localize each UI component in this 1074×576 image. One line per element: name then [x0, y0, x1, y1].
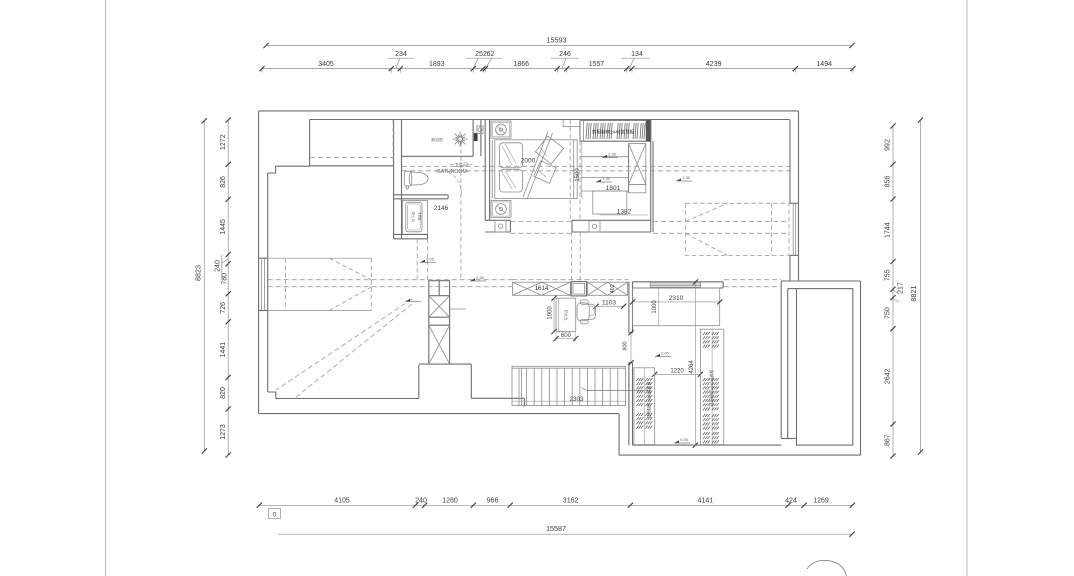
svg-text:3405: 3405 [318, 61, 334, 68]
svg-text:15593: 15593 [547, 36, 567, 45]
svg-text:3.05: 3.05 [426, 257, 433, 261]
svg-text:1273: 1273 [220, 424, 227, 440]
svg-text:1445: 1445 [220, 219, 227, 235]
svg-text:1.35: 1.35 [602, 177, 609, 181]
svg-text:0: 0 [273, 512, 277, 519]
svg-text:240: 240 [415, 498, 427, 505]
svg-text:1269: 1269 [813, 498, 829, 505]
svg-text:820: 820 [220, 387, 227, 399]
svg-text:867: 867 [885, 434, 892, 446]
svg-text:淋浴房: 淋浴房 [431, 136, 443, 142]
svg-text:2310: 2310 [669, 295, 684, 302]
svg-text:402: 402 [610, 284, 616, 293]
svg-text:780: 780 [222, 273, 229, 285]
svg-text:1103: 1103 [602, 299, 616, 306]
svg-text:8823: 8823 [194, 265, 203, 281]
svg-text:1744: 1744 [885, 222, 892, 238]
svg-text:1494: 1494 [816, 61, 832, 68]
svg-text:台下盆: 台下盆 [411, 211, 416, 222]
svg-text:1893: 1893 [429, 61, 445, 68]
svg-text:966: 966 [487, 498, 499, 505]
svg-text:62: 62 [487, 51, 495, 58]
svg-text:-BATHROOM-: -BATHROOM- [435, 169, 468, 175]
svg-text:1866: 1866 [514, 61, 530, 68]
svg-text:134: 134 [631, 51, 643, 58]
svg-text:0.05: 0.05 [680, 438, 687, 442]
svg-text:750: 750 [885, 307, 892, 319]
svg-text:424: 424 [785, 498, 797, 505]
svg-text:0.05: 0.05 [661, 352, 668, 356]
svg-text:1000: 1000 [652, 300, 658, 314]
svg-text:217: 217 [898, 282, 905, 294]
svg-text:1220: 1220 [670, 368, 684, 374]
svg-text:2.35: 2.35 [476, 276, 483, 280]
svg-text:8821: 8821 [909, 286, 918, 302]
svg-text:现场制作2440高衣柜: 现场制作2440高衣柜 [708, 370, 714, 407]
svg-text:726: 726 [220, 302, 227, 314]
svg-text:2.35: 2.35 [608, 153, 615, 157]
svg-text:1280: 1280 [442, 498, 458, 505]
svg-text:826: 826 [220, 176, 227, 188]
svg-text:衣柜制作2440宽顶柜: 衣柜制作2440宽顶柜 [592, 129, 635, 136]
svg-text:1614: 1614 [535, 286, 549, 292]
svg-text:4141: 4141 [698, 498, 714, 505]
svg-text:2642: 2642 [885, 368, 892, 384]
svg-text:1801: 1801 [606, 185, 621, 192]
svg-text:1000: 1000 [548, 306, 554, 320]
svg-text:2146: 2146 [434, 205, 449, 212]
svg-text:4239: 4239 [706, 61, 722, 68]
svg-text:1.35: 1.35 [682, 176, 689, 180]
svg-text:1557: 1557 [589, 61, 605, 68]
svg-text:15587: 15587 [546, 524, 566, 533]
svg-text:992: 992 [885, 139, 892, 151]
svg-text:4105: 4105 [334, 498, 350, 505]
svg-text:2303: 2303 [569, 396, 584, 403]
svg-text:921: 921 [417, 212, 423, 220]
svg-text:800: 800 [623, 341, 629, 350]
svg-text:600: 600 [561, 333, 572, 339]
svg-text:2000: 2000 [521, 158, 536, 165]
svg-text:234: 234 [395, 51, 407, 58]
svg-text:246: 246 [559, 51, 571, 58]
svg-text:856: 856 [885, 176, 892, 188]
svg-text:1382: 1382 [617, 208, 632, 215]
svg-text:252: 252 [475, 51, 487, 58]
svg-text:1441: 1441 [220, 342, 227, 358]
svg-text:755: 755 [885, 269, 892, 281]
svg-text:1272: 1272 [220, 134, 227, 150]
svg-text:240: 240 [214, 260, 221, 272]
svg-text:4264: 4264 [689, 360, 695, 374]
svg-text:3162: 3162 [563, 498, 579, 505]
svg-text:写字台: 写字台 [564, 309, 569, 321]
svg-text:现场制作2440高衣柜: 现场制作2440高衣柜 [646, 382, 652, 419]
